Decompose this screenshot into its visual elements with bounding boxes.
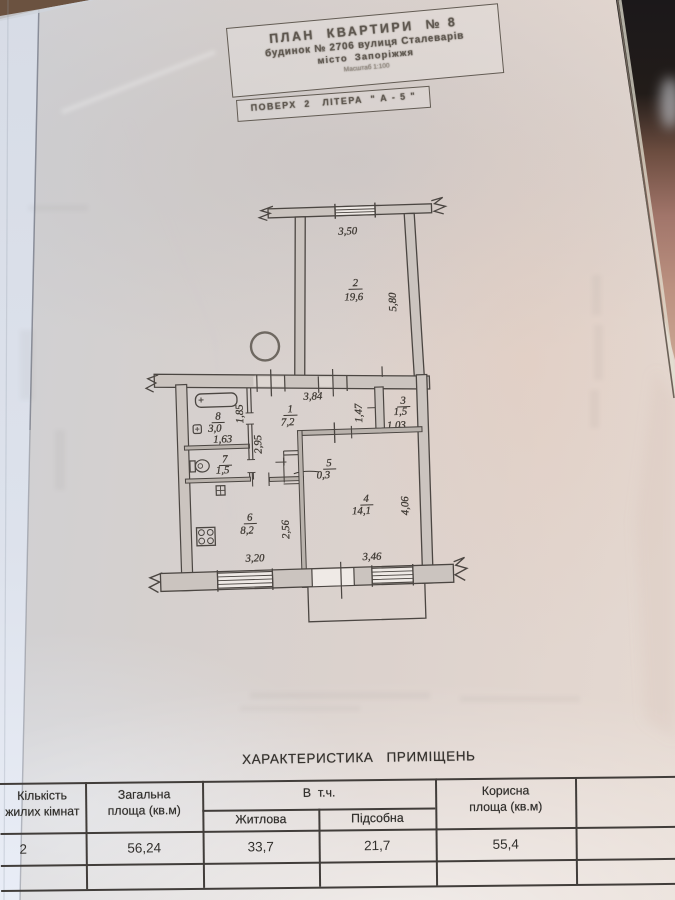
svg-text:1,63: 1,63 — [213, 433, 233, 446]
svg-text:4,06: 4,06 — [399, 496, 412, 516]
svg-text:19,6: 19,6 — [344, 291, 364, 304]
svg-text:8,2: 8,2 — [240, 524, 254, 536]
svg-text:3,84: 3,84 — [302, 390, 323, 403]
svg-text:1,5: 1,5 — [393, 406, 407, 418]
svg-text:5: 5 — [326, 457, 332, 469]
svg-text:2: 2 — [352, 277, 358, 289]
svg-text:1: 1 — [287, 403, 293, 415]
svg-text:4: 4 — [363, 493, 369, 505]
svg-text:3,46: 3,46 — [361, 551, 382, 564]
svg-text:7,2: 7,2 — [281, 416, 295, 428]
svg-text:1,47: 1,47 — [353, 403, 366, 423]
svg-text:3,20: 3,20 — [244, 552, 265, 565]
svg-text:8: 8 — [215, 410, 221, 422]
svg-text:6: 6 — [247, 512, 253, 524]
svg-text:1,85: 1,85 — [234, 404, 247, 424]
svg-text:0,3: 0,3 — [316, 469, 330, 481]
svg-text:2,95: 2,95 — [252, 434, 265, 454]
svg-text:1,5: 1,5 — [216, 464, 230, 476]
svg-text:5,80: 5,80 — [387, 292, 400, 312]
svg-text:2,56: 2,56 — [280, 519, 293, 539]
svg-text:14,1: 14,1 — [352, 505, 371, 518]
svg-text:3,50: 3,50 — [337, 225, 358, 238]
